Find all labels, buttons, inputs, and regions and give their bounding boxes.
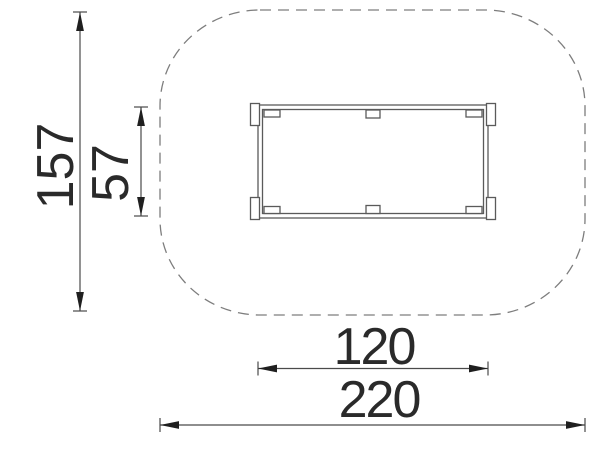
dimension-arrowheads [76, 12, 585, 429]
edge-bracket [366, 110, 380, 118]
edge-bracket [366, 206, 380, 214]
drawing-canvas: 157 57 120 220 [0, 0, 603, 453]
corner-bracket [466, 207, 482, 214]
arrow-left-icon [258, 365, 277, 373]
dimension-label-item-width: 120 [334, 321, 415, 373]
arrow-right-icon [469, 365, 488, 373]
dimension-label-item-depth: 57 [85, 144, 137, 202]
dimension-lines [73, 12, 585, 432]
corner-bracket [466, 110, 482, 117]
dimension-label-overall-height: 157 [30, 123, 82, 210]
corner-bracket [264, 207, 280, 214]
table-top-outer-edge [258, 105, 488, 218]
table-leg-cap [487, 198, 496, 220]
dimension-label-overall-width: 220 [339, 374, 420, 426]
arrow-left-icon [160, 421, 179, 429]
arrow-down-icon [76, 292, 84, 311]
arrow-up-icon [76, 12, 84, 31]
arrow-right-icon [566, 421, 585, 429]
arrow-up-icon [137, 107, 145, 126]
table-leg-cap [251, 198, 260, 220]
corner-bracket [264, 110, 280, 117]
table-leg-cap [251, 104, 260, 126]
table-leg-cap [487, 104, 496, 126]
table-top-outline [251, 104, 496, 220]
drawing-svg [0, 0, 603, 453]
